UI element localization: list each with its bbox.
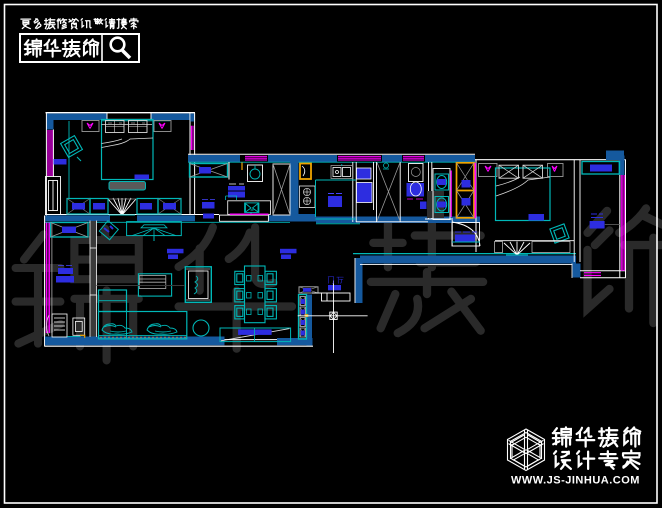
svg-text:WWW.JS-JINHUA.COM: WWW.JS-JINHUA.COM — [511, 475, 640, 487]
